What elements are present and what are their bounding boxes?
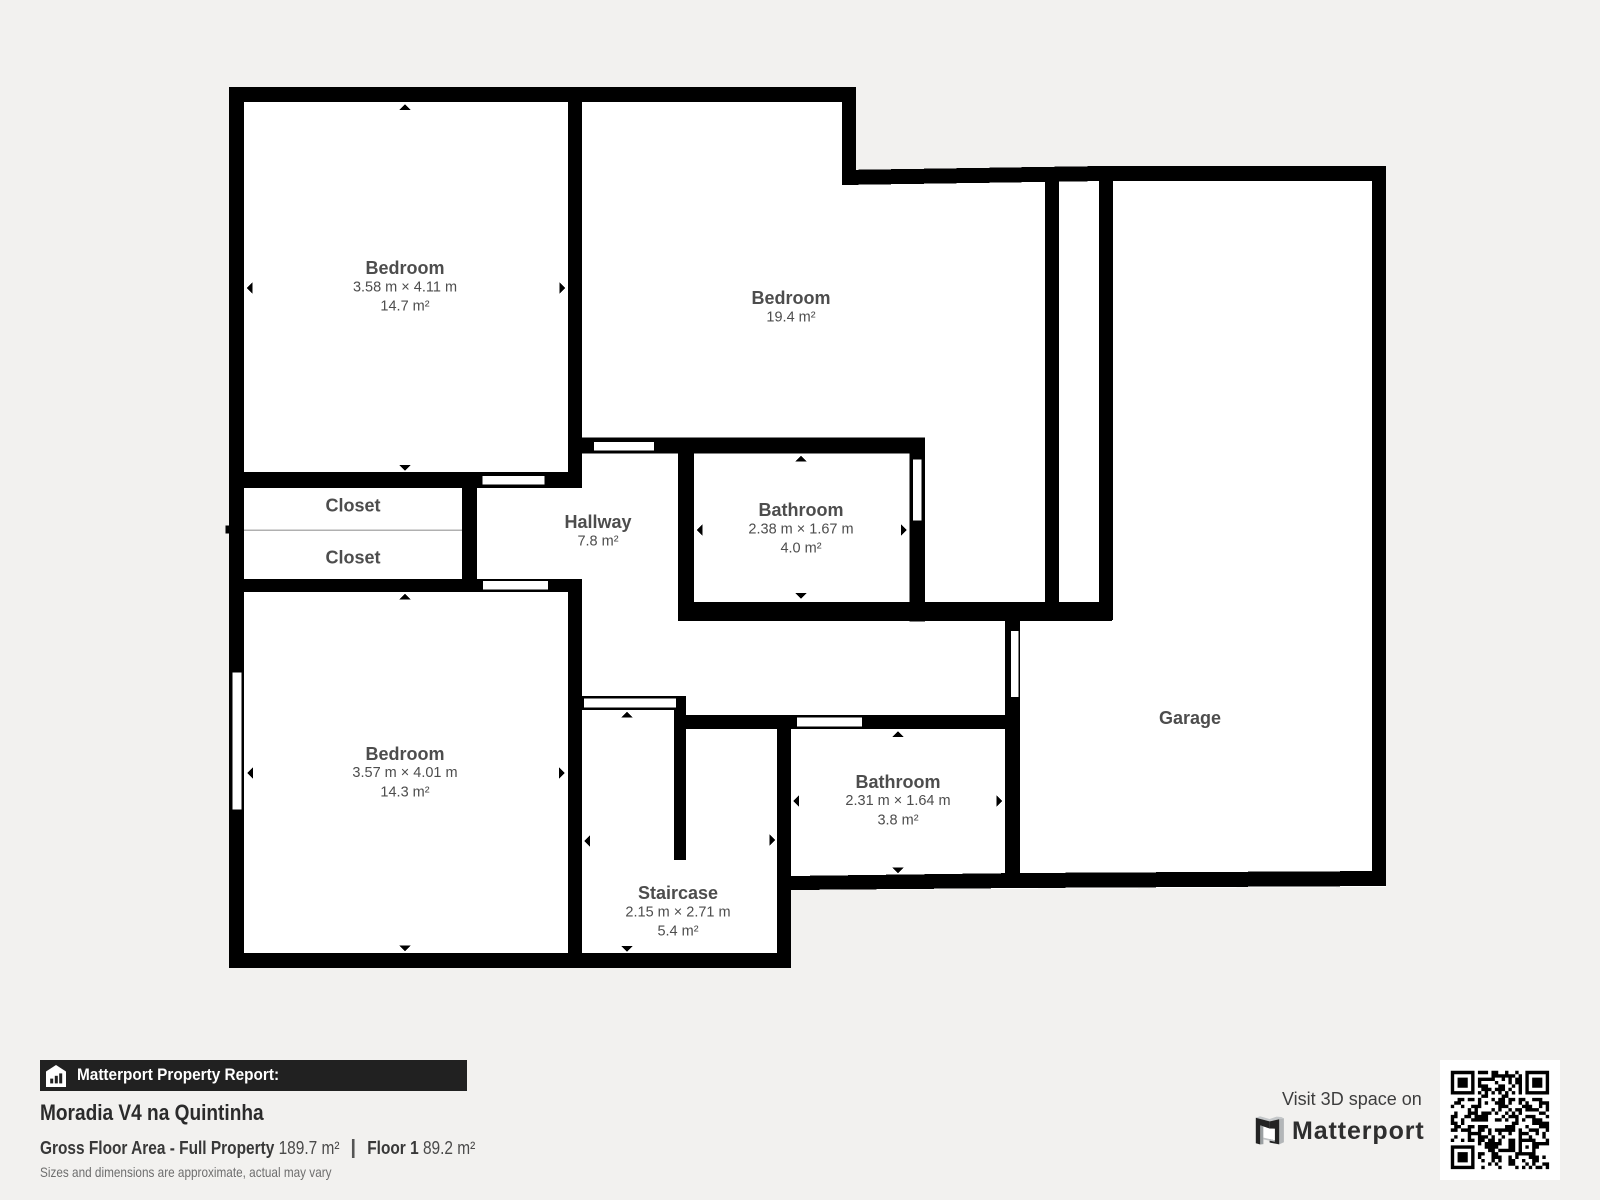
svg-text:14.7 m²: 14.7 m² (380, 299, 429, 315)
svg-text:Hallway: Hallway (564, 512, 631, 532)
svg-text:4.0 m²: 4.0 m² (780, 541, 821, 557)
svg-text:Bathroom: Bathroom (759, 500, 844, 520)
svg-text:2.38 m × 1.67 m: 2.38 m × 1.67 m (748, 522, 853, 538)
svg-text:3.8 m²: 3.8 m² (877, 813, 918, 829)
svg-text:5.4 m²: 5.4 m² (657, 924, 698, 940)
svg-text:Bedroom: Bedroom (365, 258, 444, 278)
svg-text:2.31 m × 1.64 m: 2.31 m × 1.64 m (845, 793, 950, 809)
svg-text:Bedroom: Bedroom (751, 288, 830, 308)
svg-text:19.4 m²: 19.4 m² (766, 310, 815, 326)
svg-text:7.8 m²: 7.8 m² (577, 534, 618, 550)
svg-text:2.15 m × 2.71 m: 2.15 m × 2.71 m (625, 905, 730, 921)
svg-text:3.58 m × 4.11 m: 3.58 m × 4.11 m (353, 280, 457, 296)
svg-text:Garage: Garage (1159, 708, 1221, 728)
svg-text:Staircase: Staircase (638, 883, 718, 903)
svg-text:Closet: Closet (325, 496, 380, 516)
svg-text:Bathroom: Bathroom (856, 772, 941, 792)
svg-text:Bedroom: Bedroom (365, 744, 444, 764)
svg-text:Closet: Closet (325, 548, 380, 568)
svg-text:3.57 m × 4.01 m: 3.57 m × 4.01 m (352, 765, 457, 781)
svg-text:14.3 m²: 14.3 m² (380, 785, 429, 801)
